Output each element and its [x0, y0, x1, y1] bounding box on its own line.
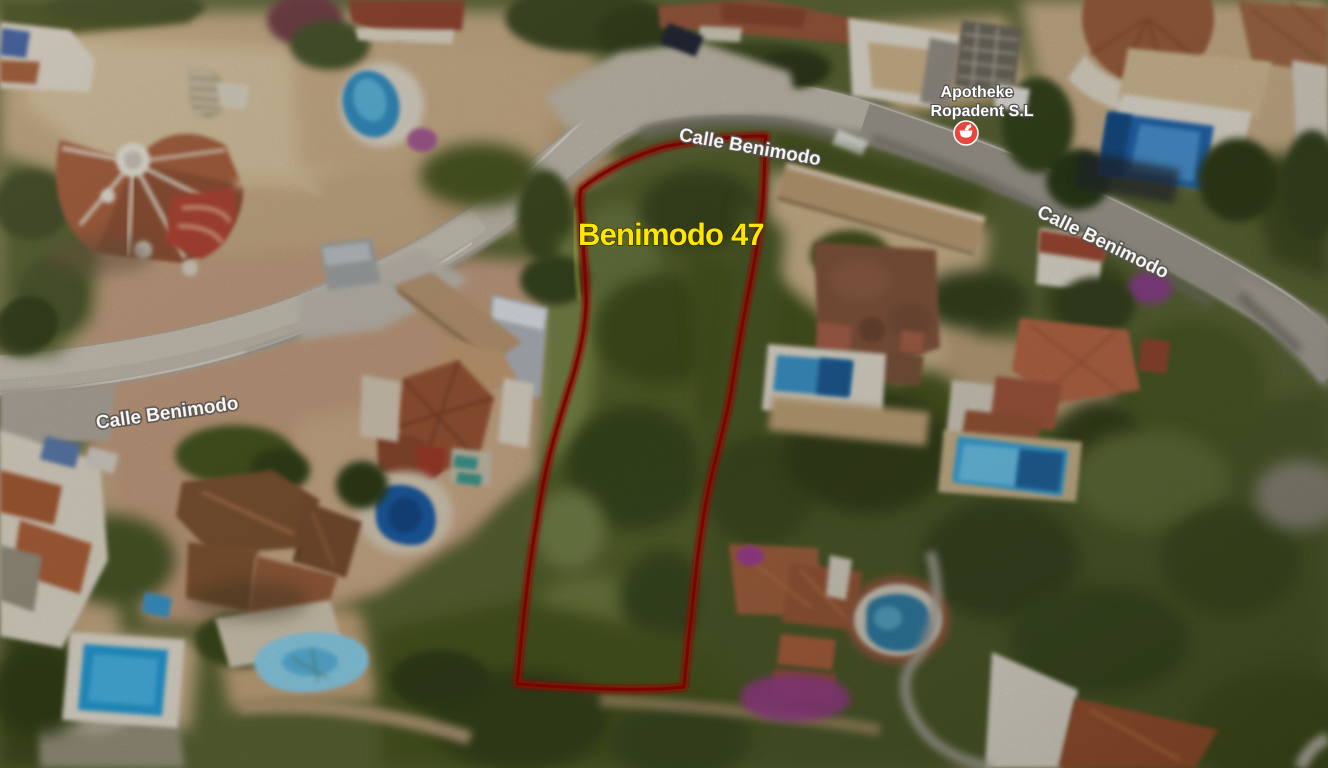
svg-text:Benimodo 47: Benimodo 47 — [578, 217, 764, 252]
svg-text:Ropadent S.L: Ropadent S.L — [930, 103, 1033, 120]
svg-text:Apotheke: Apotheke — [941, 84, 1014, 101]
